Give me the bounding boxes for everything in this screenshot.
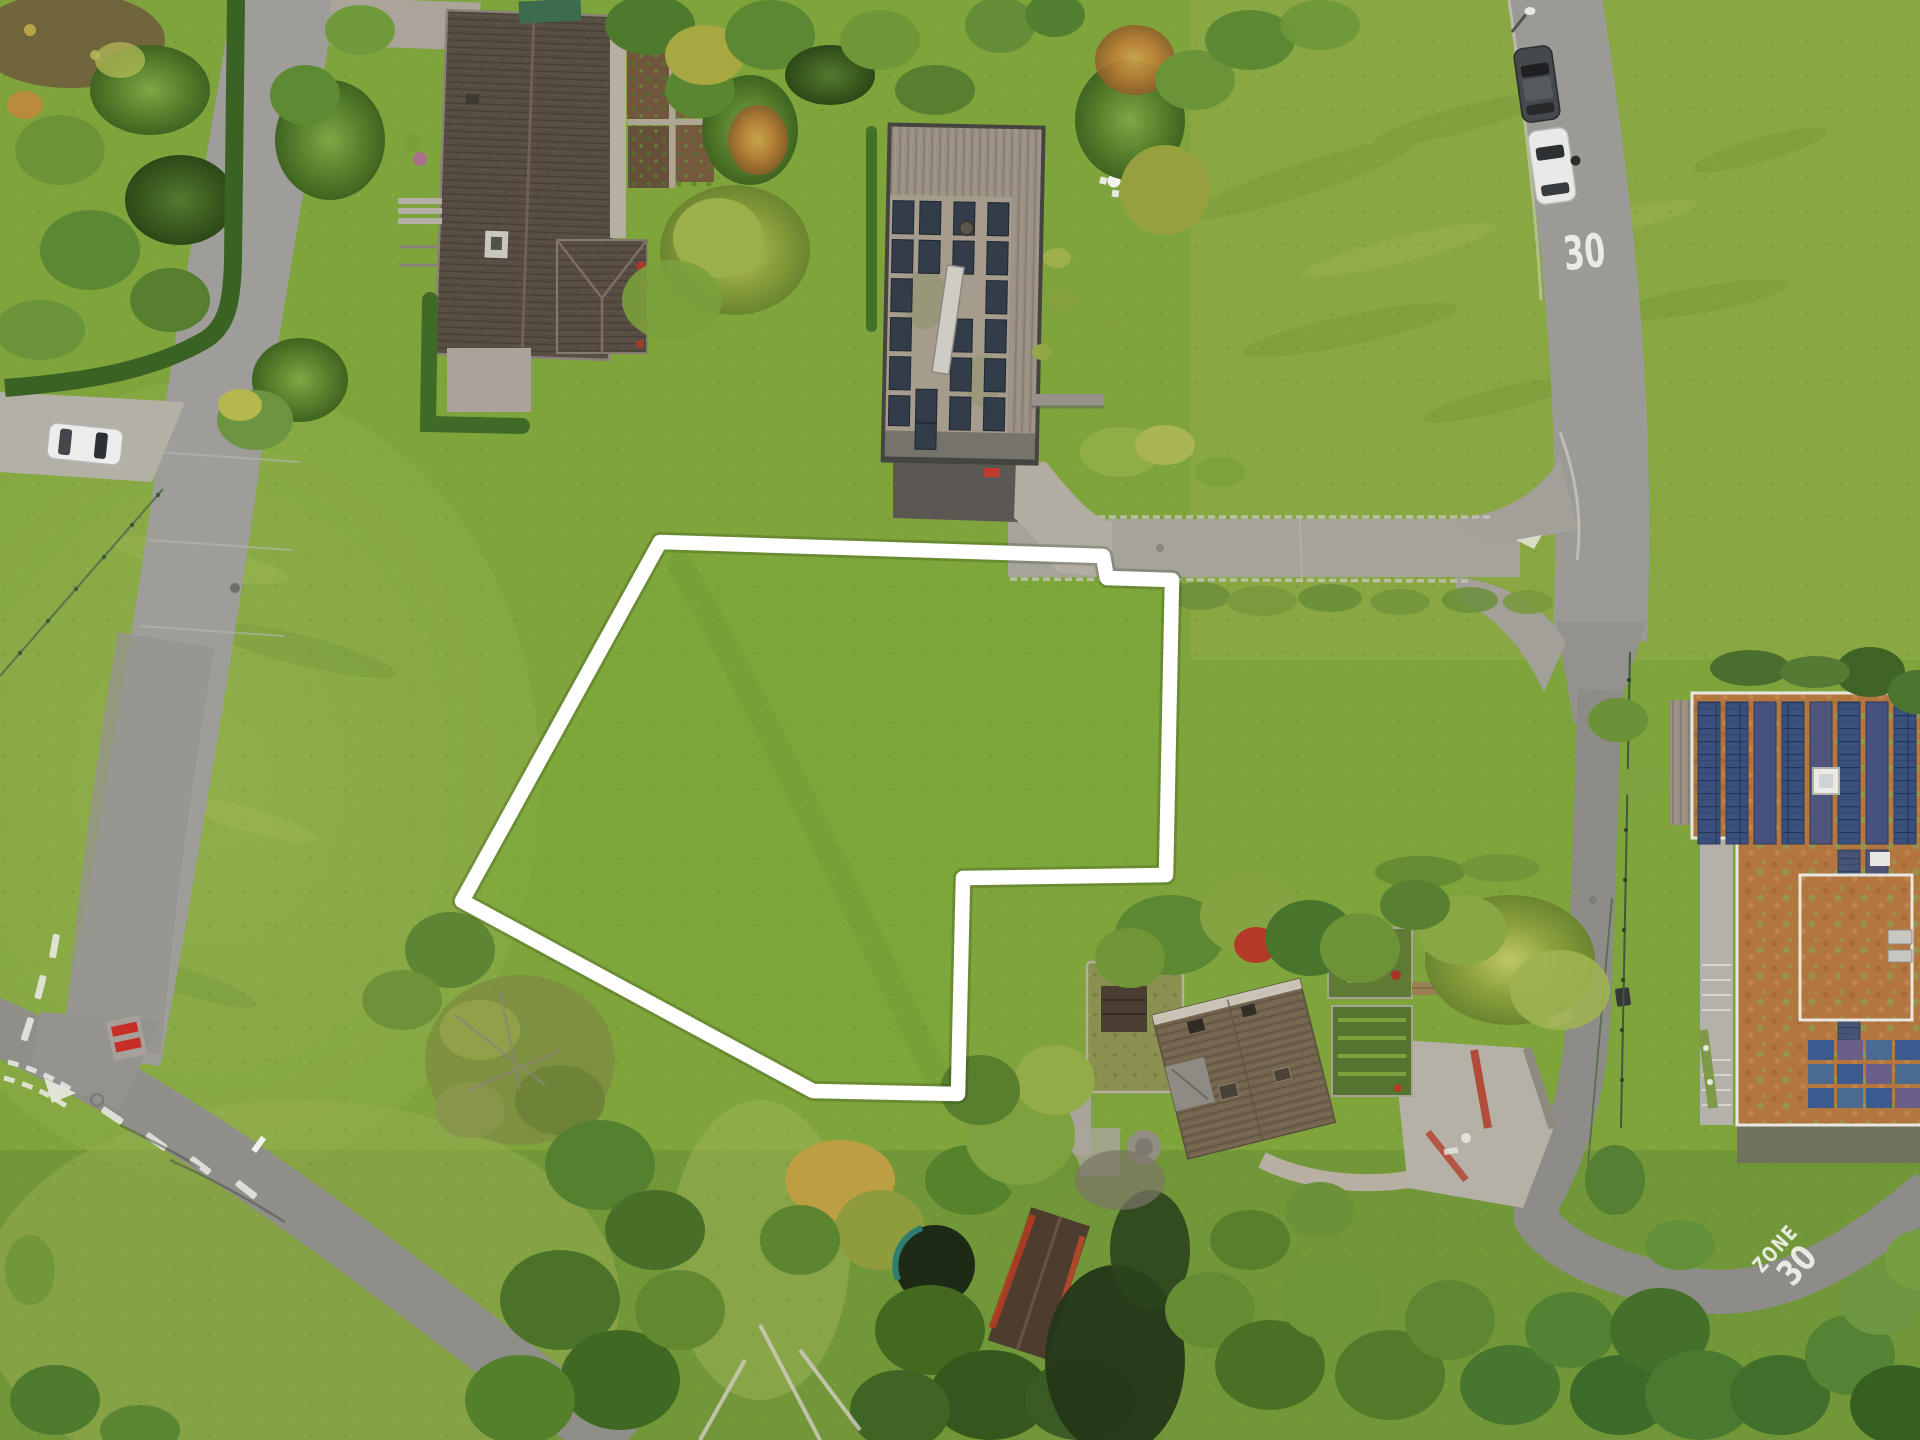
gravel-path <box>610 16 626 238</box>
road-marking-30: 30 <box>1561 224 1608 282</box>
roof-vent-box <box>1870 852 1890 866</box>
aerial-photo-canvas: 30 ZONE 30 <box>0 0 1920 1440</box>
manhole <box>230 583 240 593</box>
retaining-wall <box>1032 394 1104 406</box>
aerial-photo: 30 ZONE 30 <box>0 0 1920 1440</box>
shaded-drive-southeast <box>1737 1125 1920 1163</box>
garage-dark-panel <box>1101 986 1147 1032</box>
roof-vent <box>959 221 973 235</box>
rocks <box>1075 1150 1165 1210</box>
raised-roof-block <box>1800 875 1912 1020</box>
terrace <box>447 348 531 412</box>
manhole <box>1156 544 1164 552</box>
roof-window <box>466 94 479 104</box>
rooftop-unit <box>1888 930 1912 944</box>
green-tarp <box>518 0 581 24</box>
hedge-west-boundary <box>866 126 877 332</box>
red-bin <box>984 468 1000 477</box>
vegetable-garden <box>1332 1006 1412 1096</box>
car-white-parked <box>46 422 123 466</box>
rooftop-unit <box>1888 950 1912 962</box>
driveway-asphalt <box>893 456 1020 522</box>
garden-steps <box>398 198 442 224</box>
